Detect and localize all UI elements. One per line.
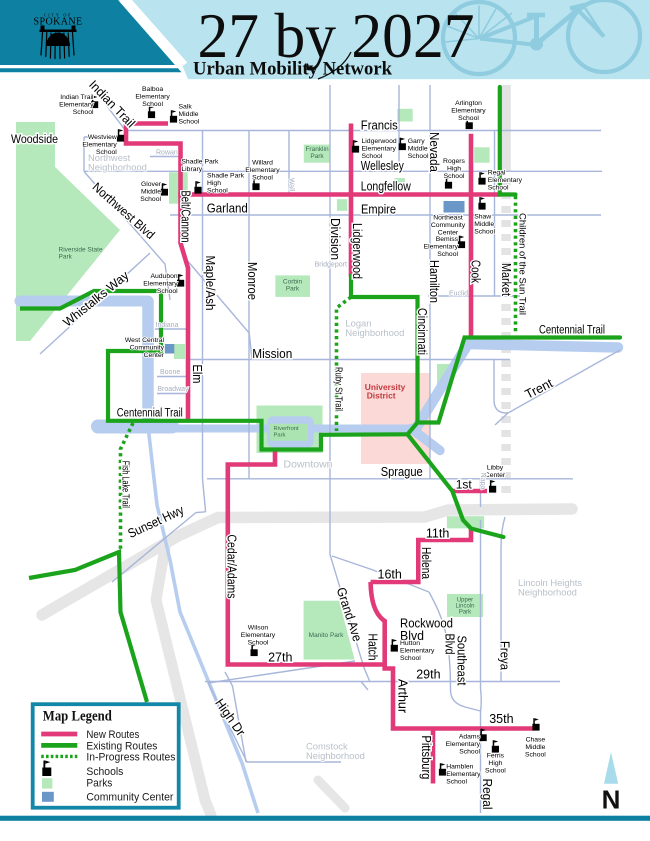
svg-text:Napa: Napa: [479, 473, 486, 490]
svg-text:Wall: Wall: [287, 178, 294, 192]
svg-text:Cook: Cook: [469, 260, 483, 284]
svg-text:GloverMiddleSchool: GloverMiddleSchool: [140, 181, 162, 203]
svg-text:Pittsburg: Pittsburg: [419, 735, 433, 779]
svg-text:Community Center: Community Center: [86, 791, 173, 803]
svg-text:Elm: Elm: [190, 365, 204, 384]
svg-text:LibbyCenter: LibbyCenter: [485, 464, 506, 479]
svg-text:Cincinnati: Cincinnati: [415, 308, 429, 355]
svg-text:In-Progress Routes: In-Progress Routes: [86, 751, 176, 763]
svg-text:Freya: Freya: [498, 641, 512, 670]
svg-text:35th: 35th: [489, 712, 513, 726]
svg-text:Hatch: Hatch: [366, 634, 380, 661]
svg-text:New Routes: New Routes: [86, 729, 140, 741]
svg-text:Market: Market: [499, 263, 513, 296]
svg-text:Indiana: Indiana: [156, 322, 179, 329]
svg-text:Schools: Schools: [86, 766, 124, 778]
svg-text:Mission: Mission: [252, 347, 292, 361]
svg-text:Helena: Helena: [419, 547, 433, 579]
svg-text:Euclid: Euclid: [449, 291, 468, 298]
svg-text:1st: 1st: [456, 478, 473, 492]
svg-text:Blvd: Blvd: [443, 634, 457, 655]
svg-text:Map Legend: Map Legend: [43, 709, 113, 725]
svg-text:Boone: Boone: [160, 369, 180, 376]
svg-text:Longfellow: Longfellow: [361, 180, 412, 194]
svg-text:Woodside: Woodside: [11, 134, 58, 146]
svg-text:Maple/Ash: Maple/Ash: [203, 256, 217, 311]
svg-text:16th: 16th: [378, 568, 402, 582]
svg-text:Arthur: Arthur: [396, 679, 410, 713]
svg-text:Fish Lake Trail: Fish Lake Trail: [120, 461, 132, 508]
svg-text:Downtown: Downtown: [284, 459, 333, 471]
svg-text:Empire: Empire: [361, 203, 396, 217]
svg-text:Children of the Sun Trail: Children of the Sun Trail: [517, 213, 528, 315]
svg-text:Division: Division: [328, 218, 342, 260]
svg-text:Monroe: Monroe: [245, 262, 259, 300]
svg-text:Belt/Cannon: Belt/Cannon: [179, 191, 193, 243]
svg-text:Urban Mobility Network: Urban Mobility Network: [193, 60, 393, 80]
svg-text:Hamilton: Hamilton: [427, 260, 441, 303]
svg-text:N: N: [602, 785, 621, 815]
svg-text:27th: 27th: [268, 651, 292, 665]
svg-text:29th: 29th: [416, 668, 440, 682]
svg-text:Sprague: Sprague: [381, 465, 423, 479]
svg-text:Lidgerwood: Lidgerwood: [350, 223, 364, 279]
svg-text:Centennial Trail: Centennial Trail: [117, 408, 183, 420]
svg-text:Southeast: Southeast: [455, 636, 469, 686]
svg-text:Wellesley: Wellesley: [361, 159, 405, 173]
svg-text:11th: 11th: [426, 527, 449, 541]
svg-text:Manito Park: Manito Park: [309, 632, 344, 639]
svg-text:Francis: Francis: [361, 119, 398, 133]
svg-text:Regal: Regal: [480, 779, 494, 810]
svg-text:Ruby St Trail: Ruby St Trail: [333, 367, 345, 411]
svg-text:Broadway: Broadway: [157, 386, 189, 393]
svg-text:Lincoln HeightsNeighborhood: Lincoln HeightsNeighborhood: [518, 577, 582, 598]
svg-text:Nevada: Nevada: [427, 132, 441, 172]
svg-text:Bridgeport: Bridgeport: [315, 262, 347, 269]
svg-text:Garland: Garland: [207, 202, 248, 216]
svg-text:Parks: Parks: [86, 777, 113, 789]
svg-text:ChaseMiddleSchool: ChaseMiddleSchool: [525, 737, 546, 759]
svg-text:Centennial Trail: Centennial Trail: [539, 325, 605, 337]
svg-text:Cedar/Adams: Cedar/Adams: [225, 535, 239, 599]
svg-text:Rowan: Rowan: [156, 150, 178, 157]
